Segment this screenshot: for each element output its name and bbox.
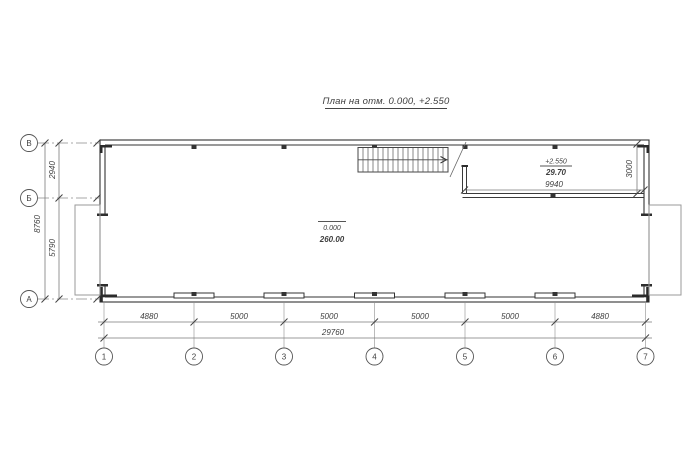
main-room-level: 0.000 — [323, 225, 341, 232]
column-axis-3 — [282, 145, 287, 149]
mezzanine-wall-column — [551, 194, 556, 198]
drawing-title-block: План на отм. 0.000, +2.550 — [323, 96, 451, 109]
window-column-axis-2 — [192, 292, 197, 296]
mezzanine-level: +2.550 — [545, 159, 567, 166]
column-axis-labels: 1 2 3 4 5 6 7 — [102, 353, 649, 362]
column-axis-2 — [192, 145, 197, 149]
dim-left-upper: 2940 — [48, 161, 57, 180]
row-axis-labels: В Б А — [26, 139, 32, 304]
axis-label-col-5: 5 — [463, 353, 468, 362]
axis-label-row-a: А — [26, 295, 32, 304]
left-gate-bottom-jamb — [97, 284, 108, 287]
column-axis-lines — [104, 303, 646, 348]
dim-left-lower: 5790 — [48, 239, 57, 257]
dim-bottom-seg-2: 5000 — [230, 312, 248, 321]
window-column-axis-6 — [553, 292, 558, 296]
window-column-axis-4 — [372, 292, 377, 296]
dim-mezzanine-width: 9940 — [545, 180, 563, 189]
dim-bottom-seg-5: 5000 — [501, 312, 519, 321]
pilaster-top-right-leg — [647, 145, 650, 153]
axis-label-col-6: 6 — [553, 353, 558, 362]
column-axis-6 — [553, 145, 558, 149]
axis-label-col-7: 7 — [643, 353, 648, 362]
dim-mezzanine-depth: 3000 — [625, 160, 634, 178]
left-platform — [75, 205, 100, 295]
mezzanine-wall-end-cap — [462, 165, 469, 167]
dimension-texts: 8760 2940 5790 4880 5000 5000 5000 5000 … — [33, 160, 634, 337]
left-gate-top-jamb — [97, 214, 108, 217]
right-platform — [649, 205, 681, 295]
floor-plan-drawing: План на отм. 0.000, +2.550 — [0, 0, 700, 474]
dim-bottom-seg-4: 5000 — [411, 312, 429, 321]
axis-label-col-2: 2 — [192, 353, 197, 362]
dim-bottom-seg-6: 4880 — [591, 312, 609, 321]
window-column-axis-5 — [463, 292, 468, 296]
dim-left-total: 8760 — [33, 215, 42, 233]
axis-label-col-4: 4 — [372, 353, 377, 362]
dim-bottom-seg-3: 5000 — [320, 312, 338, 321]
stair — [358, 142, 466, 177]
dim-bottom-seg-1: 4880 — [140, 312, 158, 321]
drawing-title: План на отм. 0.000, +2.550 — [323, 96, 451, 107]
axis-label-row-b: Б — [26, 194, 31, 203]
pilaster-top-left-leg — [100, 145, 103, 153]
stair-break-line — [450, 142, 466, 177]
right-gate-top-jamb — [641, 214, 652, 217]
axis-label-col-1: 1 — [102, 353, 107, 362]
loading-platforms — [75, 205, 681, 295]
main-room-area: 260.00 — [319, 235, 345, 244]
axis-label-row-v: В — [26, 139, 31, 148]
gate-jambs — [97, 214, 652, 287]
right-gate-bottom-jamb — [641, 284, 652, 287]
window-column-axis-3 — [282, 292, 287, 296]
axis-label-col-3: 3 — [282, 353, 287, 362]
floor-plan-sheet: План на отм. 0.000, +2.550 — [0, 0, 700, 474]
mezzanine-area: 29.70 — [545, 168, 567, 177]
dim-bottom-total: 29760 — [321, 328, 345, 337]
